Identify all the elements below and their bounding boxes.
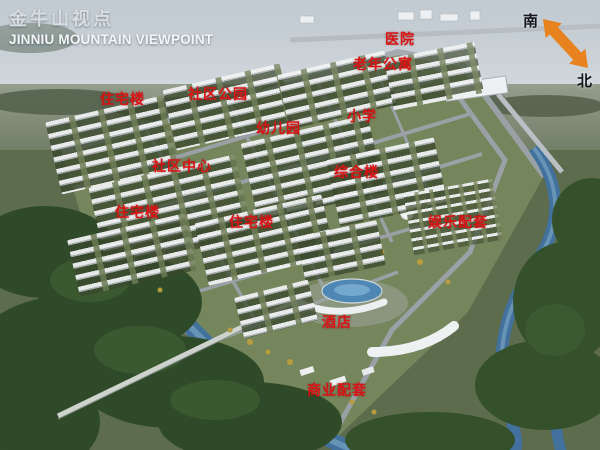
map-label: 老年公寓 [353,57,413,72]
page-title-english: JINNIU MOUNTAIN VIEWPOINT [9,32,213,47]
map-label: 综合楼 [334,165,379,180]
map-label: 娱乐配套 [428,215,488,230]
map-label: 住宅楼 [115,205,160,220]
map-label: 小学 [347,109,377,124]
title-block: 金牛山视点 JINNIU MOUNTAIN VIEWPOINT [9,5,213,47]
masterplan-rendering: 金牛山视点 JINNIU MOUNTAIN VIEWPOINT 南 北 医院老年… [0,0,600,450]
map-label: 社区中心 [152,159,212,174]
map-label: 社区公园 [188,87,248,102]
compass-north-label: 北 [577,70,592,91]
map-label: 住宅楼 [100,92,145,107]
page-title-chinese: 金牛山视点 [9,5,213,31]
map-label: 商业配套 [307,383,367,398]
compass: 南 北 [510,0,600,100]
map-label: 住宅楼 [229,215,274,230]
map-label: 医院 [385,32,415,47]
map-label: 酒店 [322,315,352,330]
map-label: 幼儿园 [256,121,301,136]
